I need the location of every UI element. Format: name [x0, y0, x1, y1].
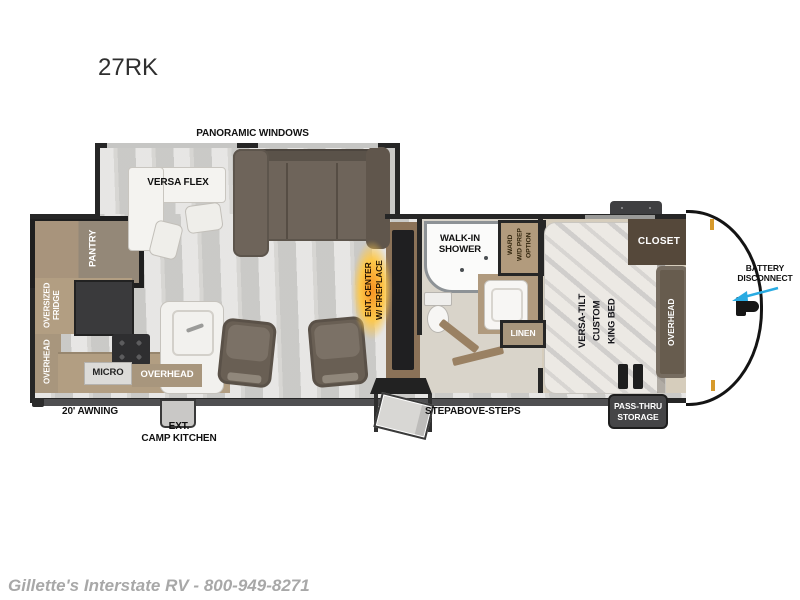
closet-label: CLOSET	[638, 236, 680, 248]
sofa-chaise	[233, 149, 269, 257]
recliner-footrest	[322, 372, 359, 383]
vanity-sink-bowl	[491, 288, 523, 322]
sofa-armrest	[366, 147, 390, 249]
overhead-left-label: OVERHEAD	[37, 334, 57, 390]
bedroom-window	[585, 215, 655, 219]
marker-light-icon	[711, 380, 715, 391]
sofa-cushion-divider	[336, 163, 338, 239]
slideout-window	[258, 143, 378, 148]
versa-flex-label: VERSA FLEX	[132, 177, 224, 189]
recliner-chair	[217, 317, 278, 388]
overhead-bottom-box: OVERHEAD	[132, 364, 202, 387]
oversized-fridge	[74, 280, 134, 336]
awning-label: 20' AWNING	[62, 406, 118, 418]
micro-label: MICRO	[92, 368, 123, 379]
pass-thru-storage: PASS-THRU STORAGE	[608, 394, 668, 429]
bath-left-wall	[417, 219, 422, 335]
toilet-tank	[424, 292, 452, 306]
shower-drain-icon	[460, 268, 464, 272]
micro-box: MICRO	[84, 362, 132, 385]
floorplan-page: 27RK PANORAMIC WINDOWS VERSA FLEX PANTRY…	[0, 0, 800, 600]
tv-icon	[392, 230, 414, 370]
overhead-bottom-label: OVERHEAD	[140, 370, 193, 381]
stepabove-steps-label: STEPABOVE-STEPS	[425, 406, 521, 418]
linen-label: LINEN	[510, 329, 535, 339]
pass-thru-storage-label: PASS-THRU STORAGE	[614, 401, 662, 422]
sink-bowl	[172, 310, 214, 356]
page-title: 27RK	[98, 54, 158, 82]
ent-center-label: ENT. CENTER W/ FIREPLACE	[356, 238, 392, 342]
ext-camp-kitchen-label: EXT. CAMP KITCHEN	[124, 421, 234, 444]
king-bed-label: VERSA-TILT CUSTOM KING BED	[572, 262, 624, 380]
panoramic-windows-label: PANORAMIC WINDOWS	[170, 128, 335, 140]
oversized-fridge-label: OVERSIZED FRIDGE	[38, 277, 66, 333]
awning-rail	[36, 399, 636, 406]
linen-closet: LINEN	[500, 320, 546, 348]
pantry-label: PANTRY	[84, 222, 104, 274]
bed-step	[633, 364, 643, 389]
sofa-cushion-divider	[286, 163, 288, 239]
slideout-window	[107, 143, 237, 148]
overhead-bedroom-label: OVERHEAD	[660, 268, 684, 376]
awning-rail-end	[32, 398, 44, 407]
recliner-back	[225, 324, 270, 362]
bedroom-wall-stub	[538, 368, 543, 393]
shower-drain-icon	[484, 256, 488, 260]
ward-label: WARD W/D PREP OPTION	[500, 221, 540, 269]
battery-disconnect-label: BATTERY DISCONNECT	[732, 264, 798, 284]
top-wall-left	[30, 214, 100, 219]
marker-light-icon	[710, 219, 714, 230]
battery-arrow-icon	[726, 284, 786, 304]
recliner-footrest	[227, 372, 262, 384]
walk-in-shower-label: WALK-IN SHOWER	[426, 234, 494, 256]
bedroom-closet: CLOSET	[628, 218, 690, 265]
dinette-chair	[184, 202, 224, 235]
entry-threshold	[370, 378, 432, 394]
dealer-watermark: Gillette's Interstate RV - 800-949-8271	[8, 576, 310, 596]
